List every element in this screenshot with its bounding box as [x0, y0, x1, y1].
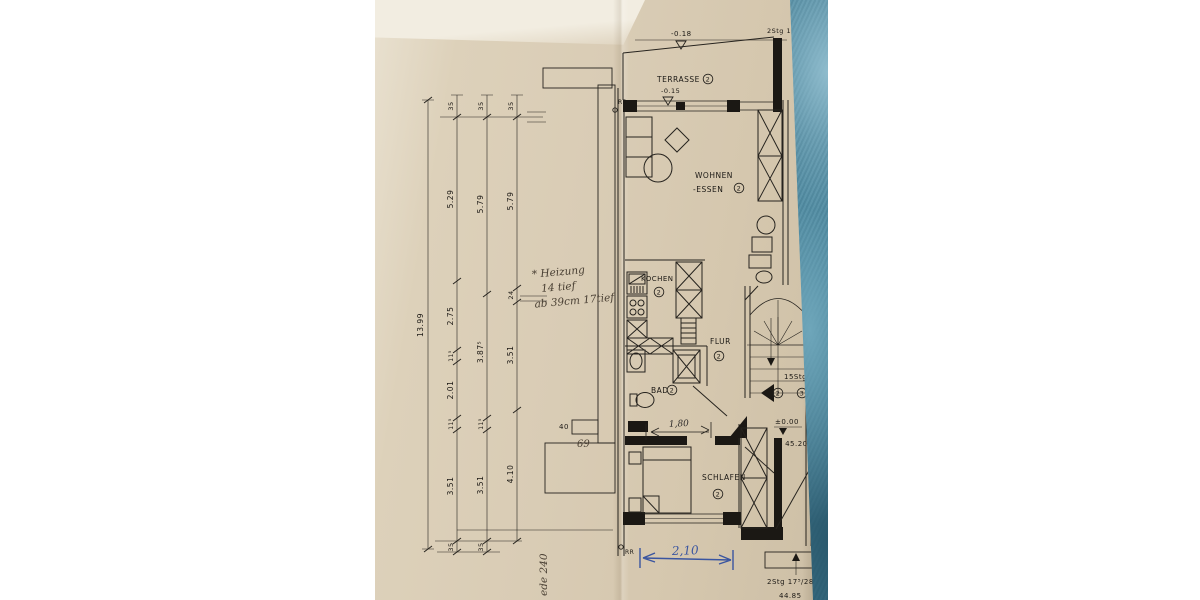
dim-c4-0: 35 — [507, 101, 515, 110]
radiator-width-label: 40 — [559, 423, 569, 431]
heizung-line1: * Heizung — [531, 264, 585, 281]
desk-surface: 13.99 35 5.29 2.75 11⁵ 2.01 11⁵ 3.51 35 … — [375, 0, 828, 600]
living-room-furniture — [626, 110, 782, 283]
wohnen-label: WOHNEN — [695, 171, 733, 180]
dim-c2-4: 2.01 — [446, 381, 455, 400]
annotations: 2Stg 1 15Stg 2Stg 17⁵/28 RR RR 40 69 1,8… — [531, 27, 813, 596]
dim-c3-0: 35 — [477, 101, 485, 110]
terrasse-unit: 2 — [706, 76, 711, 84]
flur-unit: 2 — [717, 353, 722, 361]
stair-unit-2: 2 — [776, 390, 781, 398]
dim-c2-0: 35 — [447, 101, 455, 110]
dim-c3-5: 35 — [477, 542, 485, 551]
dim-c3-3: 11⁵ — [478, 418, 485, 430]
rr-top-label: RR — [618, 99, 627, 106]
bathroom-fixtures — [627, 350, 727, 416]
dim-c3-2: 3.87⁵ — [476, 341, 485, 363]
schlafen-unit: 2 — [716, 491, 721, 499]
dim-c2-2: 2.75 — [446, 307, 455, 326]
wohnen-unit: 2 — [737, 185, 742, 193]
dim-c2-3: 11⁵ — [448, 350, 455, 362]
stg-bottom-label: 2Stg 17⁵/28 — [767, 578, 814, 586]
level-zero-label: ±0.00 — [775, 418, 799, 426]
dimension-chains: 13.99 35 5.29 2.75 11⁵ 2.01 11⁵ 3.51 35 … — [416, 95, 613, 555]
stair-unit-3: 3 — [800, 390, 805, 398]
heizung-line2: 14 tief — [541, 280, 578, 295]
hatched-wall — [543, 68, 615, 493]
heizung-note: * Heizung 14 tief ab 39cm 17tief — [531, 262, 616, 311]
dim-c2-6: 3.51 — [446, 477, 455, 496]
dim-c2-5: 11⁵ — [448, 418, 455, 430]
note-bottom: ede 240 — [538, 553, 550, 596]
dim-c4-3: 3.51 — [506, 346, 515, 365]
essen-label: -ESSEN — [693, 185, 723, 194]
level-015-label: -0.15 — [661, 87, 680, 95]
dim-c3-1: 5.79 — [476, 195, 485, 214]
dim-210: 2,10 — [671, 543, 700, 558]
note-69: 69 — [577, 439, 590, 450]
rr-bottom-label: RR — [625, 549, 634, 556]
schlafen-label: SCHLAFEN — [702, 473, 746, 482]
level-4485-label: 44.85 — [779, 592, 802, 600]
dim-c2-1: 5.29 — [446, 190, 455, 209]
staircase — [729, 286, 806, 438]
screenshot: 13.99 35 5.29 2.75 11⁵ 2.01 11⁵ 3.51 35 … — [0, 0, 1200, 600]
entry-stoop — [765, 552, 823, 575]
kochen-label: KOCHEN — [641, 275, 674, 283]
kochen-unit: 2 — [657, 289, 662, 297]
stg-top-label: 2Stg 1 — [767, 27, 791, 35]
stg-15-label: 15Stg — [784, 373, 807, 381]
floor-plan-paper: 13.99 35 5.29 2.75 11⁵ 2.01 11⁵ 3.51 35 … — [375, 0, 828, 600]
dim-c3-4: 3.51 — [476, 476, 485, 495]
dim-overall: 13.99 — [416, 313, 425, 337]
bad-unit: 2 — [670, 387, 675, 395]
terrasse-label: TERRASSE — [656, 75, 700, 84]
level-018-label: -0.18 — [671, 30, 692, 38]
dim-c4-1: 5.79 — [506, 192, 515, 211]
dim-180: 1,80 — [669, 419, 690, 430]
dim-c4-2: 24 — [507, 290, 515, 299]
bad-label: BAD — [651, 386, 669, 395]
dim-c4-4: 4.10 — [506, 465, 515, 484]
dim-c2-7: 35 — [447, 542, 455, 551]
level-4520-label: = 45.20 — [776, 440, 808, 448]
flur-label: FLUR — [710, 337, 731, 346]
floor-plan-drawing: 13.99 35 5.29 2.75 11⁵ 2.01 11⁵ 3.51 35 … — [375, 0, 828, 600]
